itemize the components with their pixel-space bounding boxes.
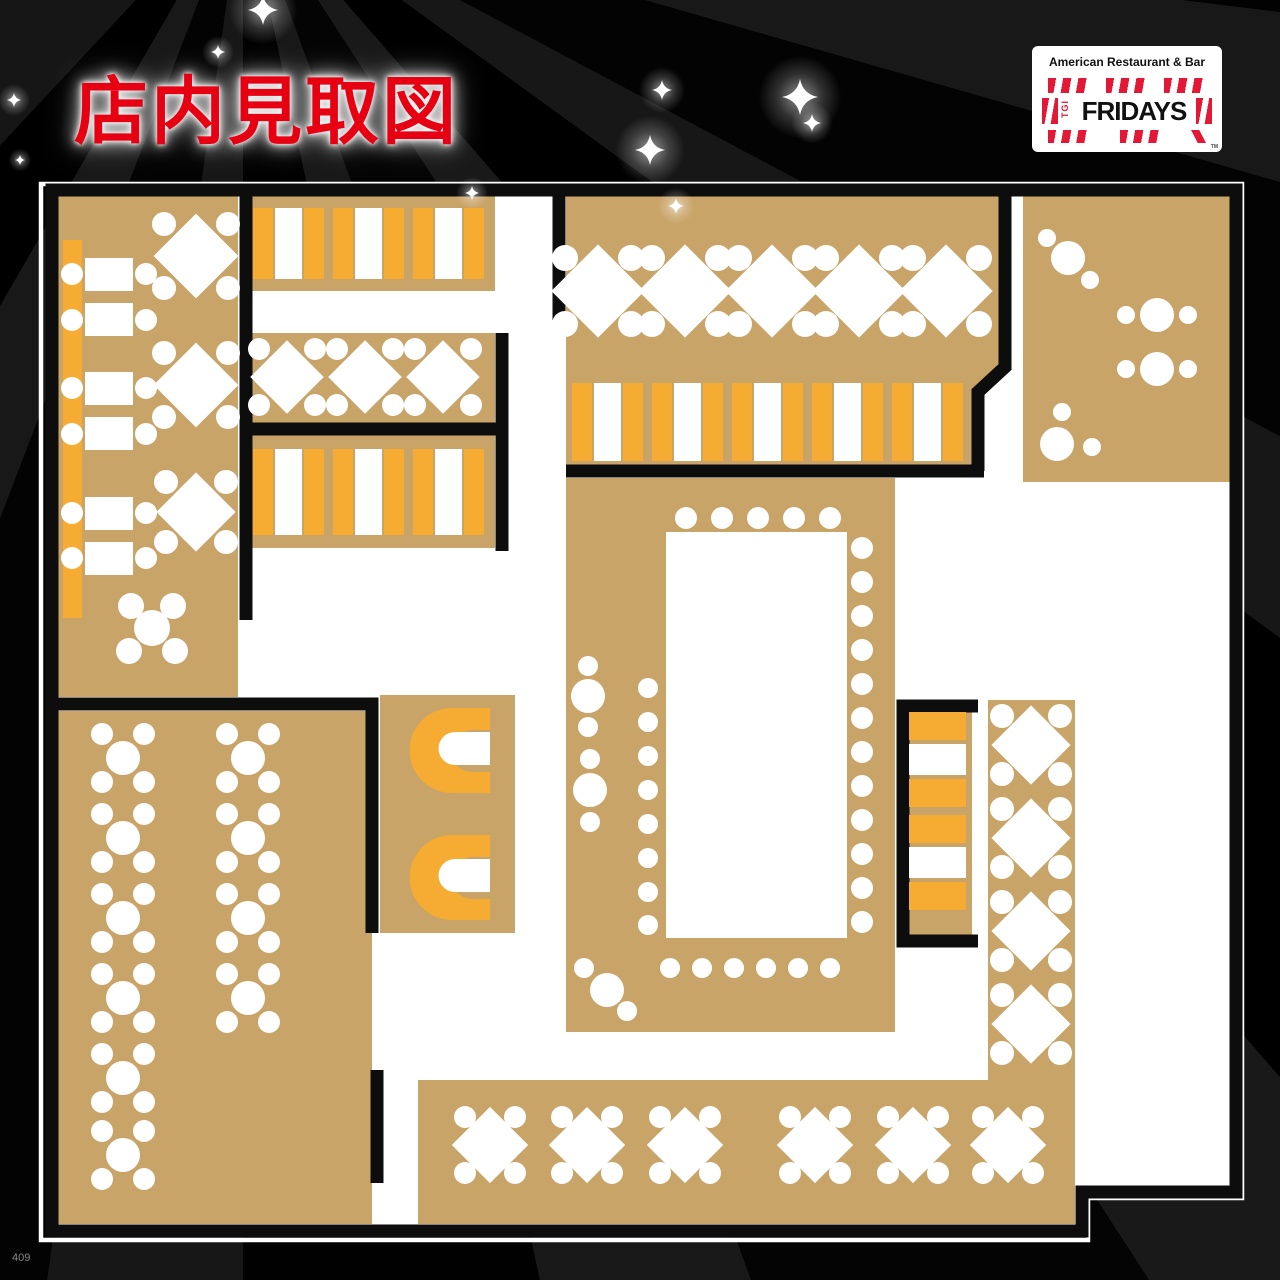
logo-tgi: TGI — [1060, 104, 1070, 118]
stripe-icon — [1042, 98, 1058, 124]
stripe-icon — [1106, 78, 1148, 93]
footer-note: 409 — [12, 1252, 30, 1264]
tgif-logo-card: American Restaurant & Bar TGI FRIDAYS TM — [1032, 46, 1222, 152]
logo-tm: TM — [1211, 144, 1218, 150]
page-title: 店内見取図 — [74, 52, 459, 159]
arrow-icon — [1191, 130, 1206, 143]
stripe-icon — [1048, 130, 1090, 143]
floor-plan-poster: 店内見取図 American Restaurant & Bar TGI FRID… — [0, 0, 1280, 1280]
logo-fridays: FRIDAYS — [1072, 96, 1196, 127]
logo-wordmark-row: TGI FRIDAYS — [1042, 96, 1212, 126]
stripe-icon — [1048, 78, 1090, 93]
stripe-icon — [1164, 78, 1206, 93]
sparkles-layer — [0, 0, 1280, 1280]
logo-stripes-top — [1048, 78, 1206, 93]
logo-tagline: American Restaurant & Bar — [1032, 55, 1222, 69]
logo-stripes-bottom — [1048, 130, 1206, 143]
stripe-icon — [1196, 98, 1212, 124]
stripe-icon — [1120, 130, 1162, 143]
